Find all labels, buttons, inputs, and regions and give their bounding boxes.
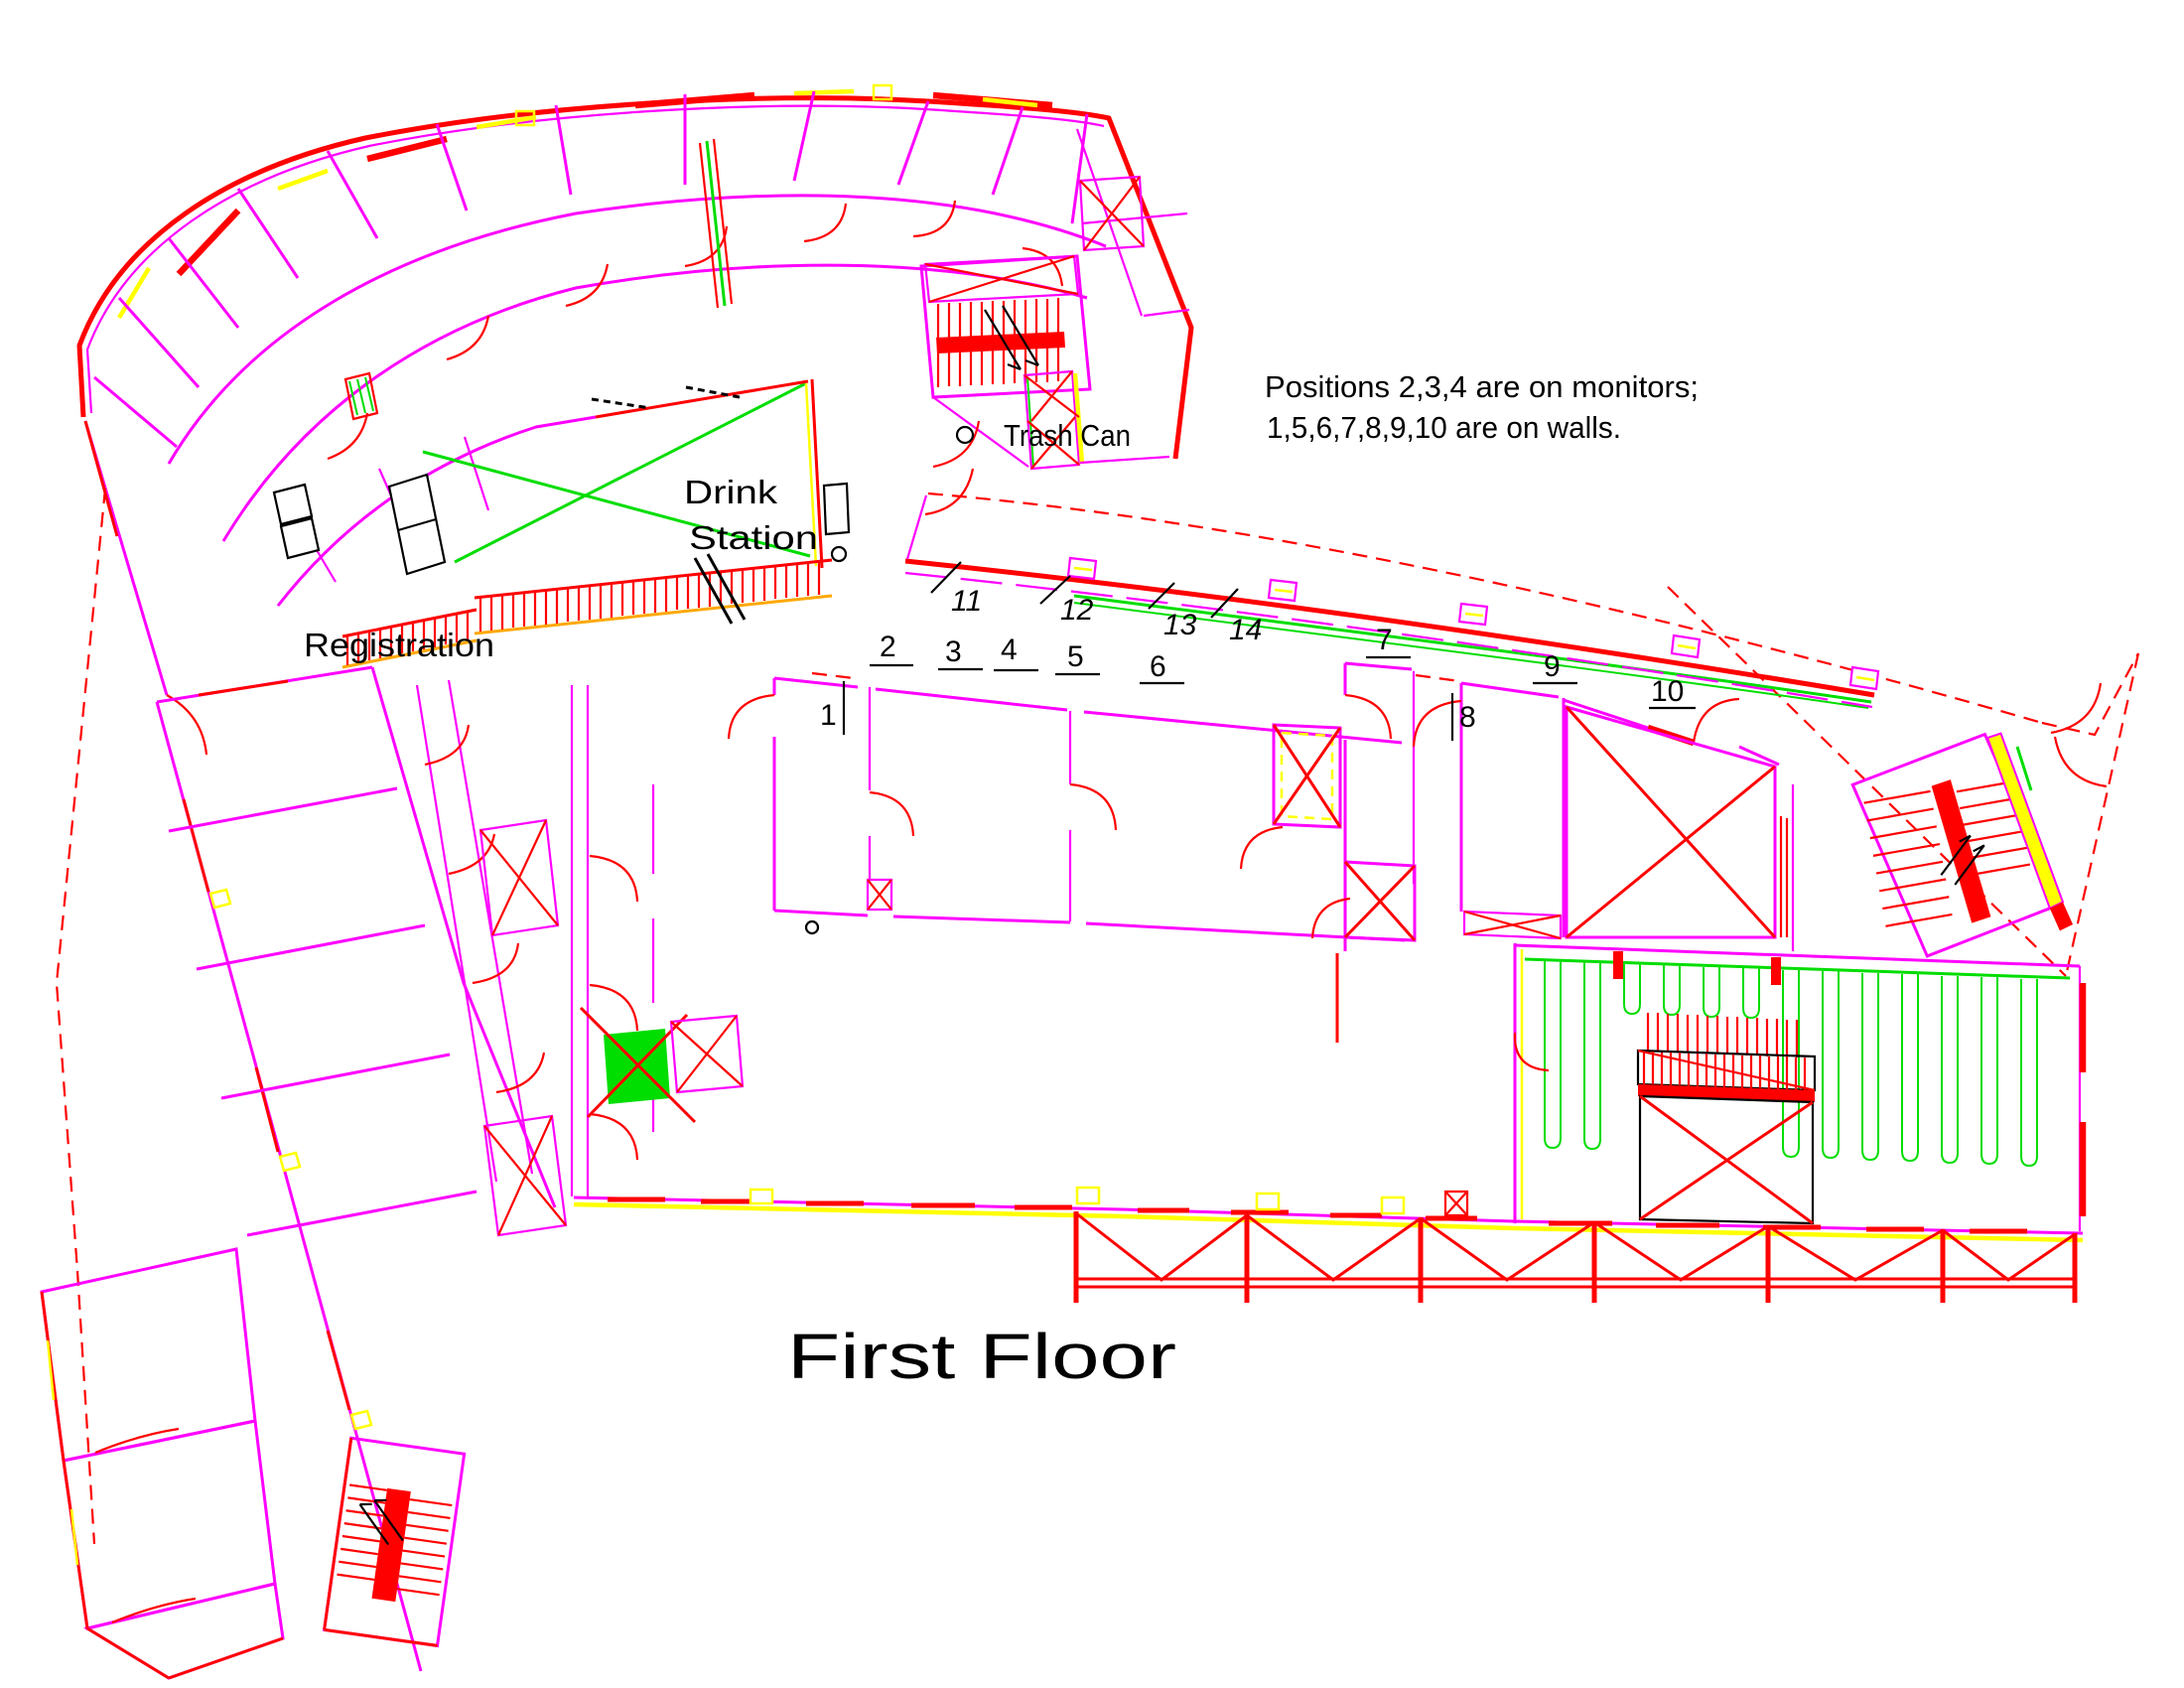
corridor-wall xyxy=(417,685,496,1182)
hatch-strip xyxy=(1781,816,1787,937)
position-label-10: 10 xyxy=(1651,675,1684,708)
trash-can-legend-icon xyxy=(957,427,973,443)
position-label-7: 7 xyxy=(1376,624,1393,656)
door-arc xyxy=(1515,1033,1549,1070)
rack-comb xyxy=(1981,977,1997,1164)
window-notch xyxy=(210,890,371,1429)
rack-comb xyxy=(1624,964,1640,1014)
room-partition xyxy=(197,925,425,969)
registration-label: Registration xyxy=(304,627,494,663)
dashed-wall-gap xyxy=(812,673,1459,681)
door-arc xyxy=(729,695,774,739)
window-band xyxy=(119,91,1037,318)
band-top-border xyxy=(475,560,832,598)
position-label-11: 11 xyxy=(951,585,982,618)
stair-spine xyxy=(1931,776,1991,925)
rack-comb xyxy=(1862,973,1878,1160)
door-arc xyxy=(870,792,913,836)
position-label-1: 1 xyxy=(820,699,837,732)
position-label-6: 6 xyxy=(1150,650,1166,683)
rooms-bottom-wall xyxy=(774,911,1405,940)
rack-comb xyxy=(2021,979,2037,1166)
door-arc xyxy=(2051,683,2107,786)
door-arc xyxy=(1345,695,1391,739)
central-block xyxy=(572,663,1793,1228)
elevator-x xyxy=(1345,862,1415,940)
rack-comb xyxy=(1704,967,1719,1017)
band-bottom-border xyxy=(475,596,832,633)
position-label-2: 2 xyxy=(880,631,896,663)
drink-station-label-1: Drink xyxy=(684,474,778,510)
door-arc xyxy=(1241,827,1350,938)
truss-chords xyxy=(1076,1279,2075,1287)
note-line1: Positions 2,3,4 are on monitors; xyxy=(1265,369,1699,404)
position-label-9: 9 xyxy=(1544,650,1561,683)
west-end-wall xyxy=(907,495,926,559)
dashed-property-line xyxy=(57,489,105,1544)
trash-can-symbol xyxy=(832,547,846,561)
shaft-x xyxy=(671,1016,743,1092)
drink-station-label-2: Station xyxy=(689,519,818,556)
position-label-3: 3 xyxy=(945,635,962,668)
bench xyxy=(281,518,319,558)
elevator-x xyxy=(1274,725,1340,827)
position-label-8: 8 xyxy=(1459,701,1476,734)
door-arc xyxy=(1070,784,1116,830)
floor-plan-drawing: Positions 2,3,4 are on monitors; 1,5,6,7… xyxy=(0,0,2184,1688)
rack-comb xyxy=(1743,968,1759,1018)
position-label-12: 12 xyxy=(1060,594,1094,627)
lower-band-wall xyxy=(278,417,596,606)
room-band-wall xyxy=(169,196,1106,464)
small-shaft xyxy=(1445,1192,1467,1215)
rack-comb xyxy=(1942,976,1958,1163)
door-arc xyxy=(1414,701,1461,747)
southwest-stairwell xyxy=(325,1438,465,1645)
east-wing xyxy=(905,493,2138,976)
shaft-x xyxy=(1640,1096,1813,1223)
east-rooms-walls xyxy=(1077,129,1189,316)
stair-treads xyxy=(1864,791,1953,926)
rack-comb xyxy=(1664,965,1680,1015)
rack-comb xyxy=(1902,974,1918,1161)
lower-block-room xyxy=(87,1584,283,1678)
position-label-14: 14 xyxy=(1229,614,1262,646)
storage-racks-area xyxy=(1515,943,2083,1240)
room9-walls xyxy=(1461,683,1564,937)
room-partition xyxy=(247,1192,477,1235)
wall xyxy=(87,106,1104,413)
rack-comb xyxy=(1545,961,1561,1148)
storage-room-x xyxy=(1567,707,1775,937)
northwest-stairwell xyxy=(921,256,1169,514)
door-arc xyxy=(1694,699,1739,743)
east-stairwell xyxy=(1848,725,2075,963)
corridor-walls xyxy=(572,685,588,1196)
drawing-title: First Floor xyxy=(787,1321,1176,1392)
shaft-x xyxy=(868,880,891,910)
room-partition xyxy=(169,788,397,831)
top-wall-red xyxy=(199,681,288,695)
door-arc xyxy=(167,695,206,755)
position-label-13: 13 xyxy=(1163,609,1197,641)
trash-can-legend-label: Trash Can xyxy=(1004,418,1131,453)
drink-station-table xyxy=(824,484,849,534)
bench xyxy=(274,485,312,524)
band-hatch xyxy=(480,561,819,632)
stair-ramp-yellow xyxy=(1987,728,2064,914)
door-arc xyxy=(328,413,367,459)
rack-comb xyxy=(1823,971,1839,1158)
position-label-5: 5 xyxy=(1067,640,1084,673)
shaft-x xyxy=(480,820,558,935)
door-arc xyxy=(95,1429,196,1622)
position-label-4: 4 xyxy=(1001,633,1018,666)
rack-comb xyxy=(1584,962,1600,1149)
door-arc xyxy=(590,856,637,1160)
trash-can-symbol xyxy=(806,921,818,933)
annotations: Positions 2,3,4 are on monitors; 1,5,6,7… xyxy=(304,369,1699,1392)
east-wall xyxy=(372,667,555,1207)
note-line2: 1,5,6,7,8,9,10 are on walls. xyxy=(1267,410,1621,445)
door-arc xyxy=(447,316,488,359)
door-arc xyxy=(804,204,846,241)
rooms-top-wall xyxy=(774,678,1402,743)
floor-plan-canvas: Positions 2,3,4 are on monitors; 1,5,6,7… xyxy=(0,0,2184,1688)
